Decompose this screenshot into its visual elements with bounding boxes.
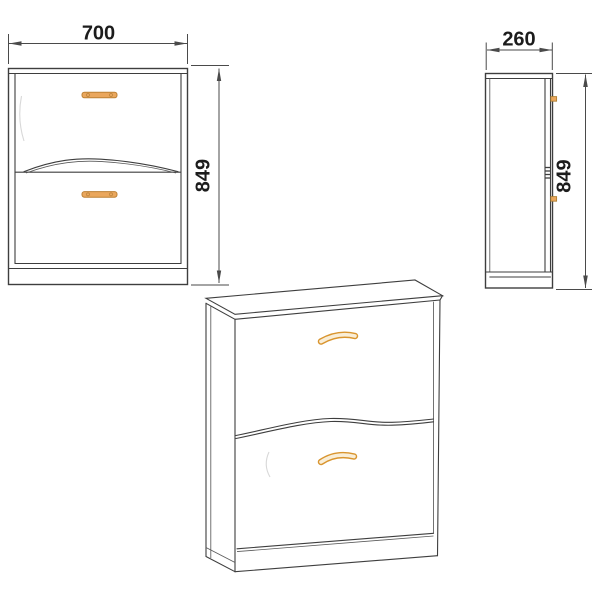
perspective-plinth-inner-line	[237, 536, 434, 552]
arrow-down-icon	[217, 271, 221, 284]
shoe-cabinet-drawing: 700 849 260	[0, 0, 600, 600]
technical-drawing-page: 700 849 260	[0, 0, 600, 600]
perspective-top-face	[206, 280, 443, 314]
arrow-up-icon	[217, 69, 221, 82]
perspective-wave-separator-inner	[236, 421, 434, 438]
arrow-right-icon	[540, 48, 553, 53]
arrow-left-icon	[9, 41, 22, 46]
handle-icon	[82, 192, 117, 198]
perspective-front-right-edge	[438, 300, 441, 556]
handle-icon	[82, 92, 117, 98]
arrow-up-icon	[583, 75, 588, 88]
front-wave-separator-inner	[26, 161, 176, 173]
perspective-left-plinth-line	[206, 548, 235, 563]
side-depth-label: 260	[502, 29, 535, 51]
perspective-plinth-top-line	[237, 533, 434, 549]
perspective-top-slab-front-edge	[235, 300, 440, 319]
front-width-label: 700	[82, 23, 115, 45]
side-view	[486, 74, 557, 289]
front-glare-line	[20, 96, 24, 141]
side-upper-handle-nub	[551, 97, 557, 102]
perspective-upper-drawer-handle	[321, 335, 355, 342]
arrow-down-icon	[583, 276, 588, 289]
side-cabinet-outline	[486, 74, 553, 289]
front-upper-drawer-handle	[82, 92, 117, 98]
front-view	[9, 69, 188, 285]
side-lower-handle-nub	[551, 197, 557, 202]
front-height-label: 849	[193, 159, 215, 192]
perspective-glare-line	[266, 452, 270, 477]
front-wave-separator	[24, 159, 178, 172]
perspective-view	[206, 280, 443, 572]
front-lower-drawer-handle	[82, 192, 117, 198]
perspective-bottom-front-edge	[235, 556, 438, 572]
perspective-bottom-left-edge	[206, 557, 235, 572]
perspective-lower-drawer-handle	[321, 455, 354, 462]
arrow-right-icon	[175, 41, 188, 46]
arrow-left-icon	[487, 48, 500, 53]
front-width-dimension: 700	[9, 23, 188, 65]
side-height-label: 849	[554, 159, 576, 192]
front-height-dimension: 849	[191, 66, 229, 286]
side-height-dimension: 849	[554, 74, 593, 290]
front-cabinet-outline	[9, 69, 188, 285]
side-depth-dimension: 260	[486, 29, 552, 71]
